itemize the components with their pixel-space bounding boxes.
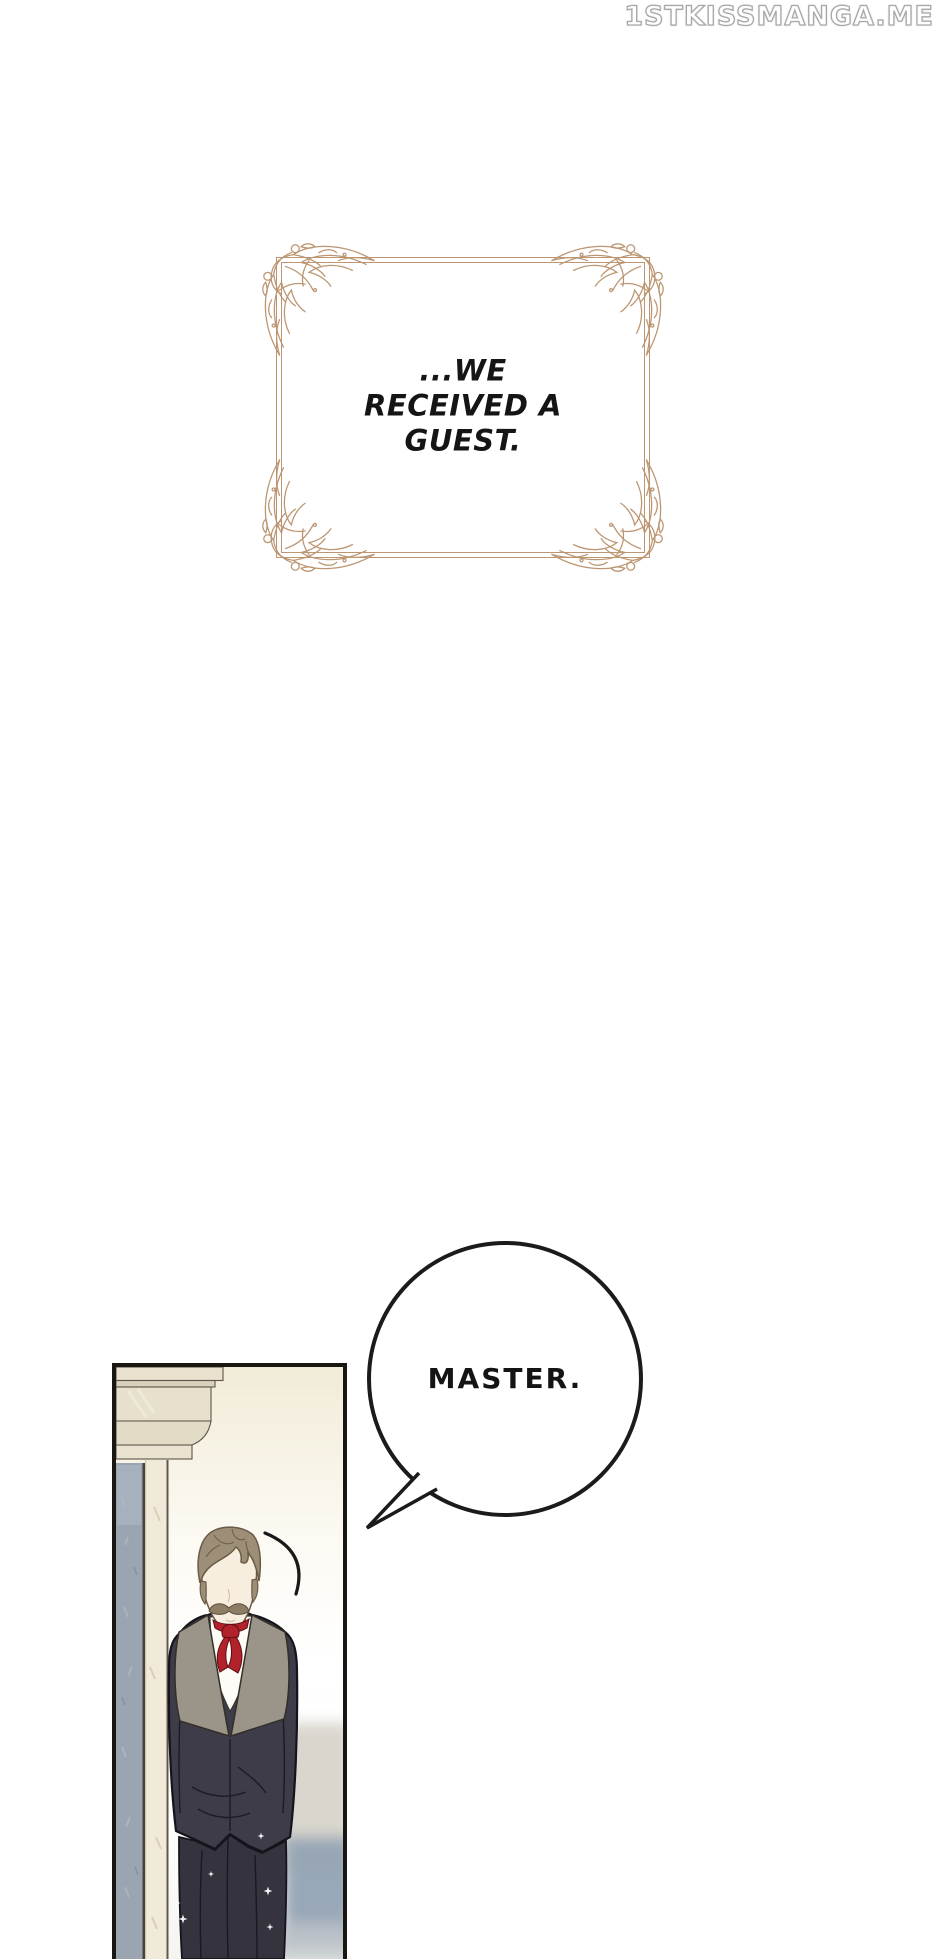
door-jamb: [145, 1460, 169, 1959]
manga-page: 1STKISSMANGA.ME ...WE RECEIVED A GUEST. …: [0, 0, 940, 1959]
panel-artwork: [116, 1367, 343, 1959]
narration-line: GUEST.: [277, 423, 649, 458]
door-mirror: [116, 1463, 145, 1959]
corner-flourish-top-left-icon: [250, 231, 378, 359]
narration-line: ...WE: [277, 353, 649, 388]
narration-frame: ...WE RECEIVED A GUEST.: [276, 257, 650, 558]
corner-flourish-top-right-icon: [548, 231, 676, 359]
speech-bubble-text: MASTER.: [395, 1362, 615, 1396]
corner-flourish-bottom-right-icon: [548, 456, 676, 584]
site-watermark: 1STKISSMANGA.ME: [624, 0, 934, 33]
butler-coat-tails: [179, 1835, 286, 1959]
corner-flourish-bottom-left-icon: [250, 456, 378, 584]
narration-line: RECEIVED A: [277, 388, 649, 423]
narration-text: ...WE RECEIVED A GUEST.: [277, 353, 649, 458]
comic-panel: [112, 1363, 347, 1959]
